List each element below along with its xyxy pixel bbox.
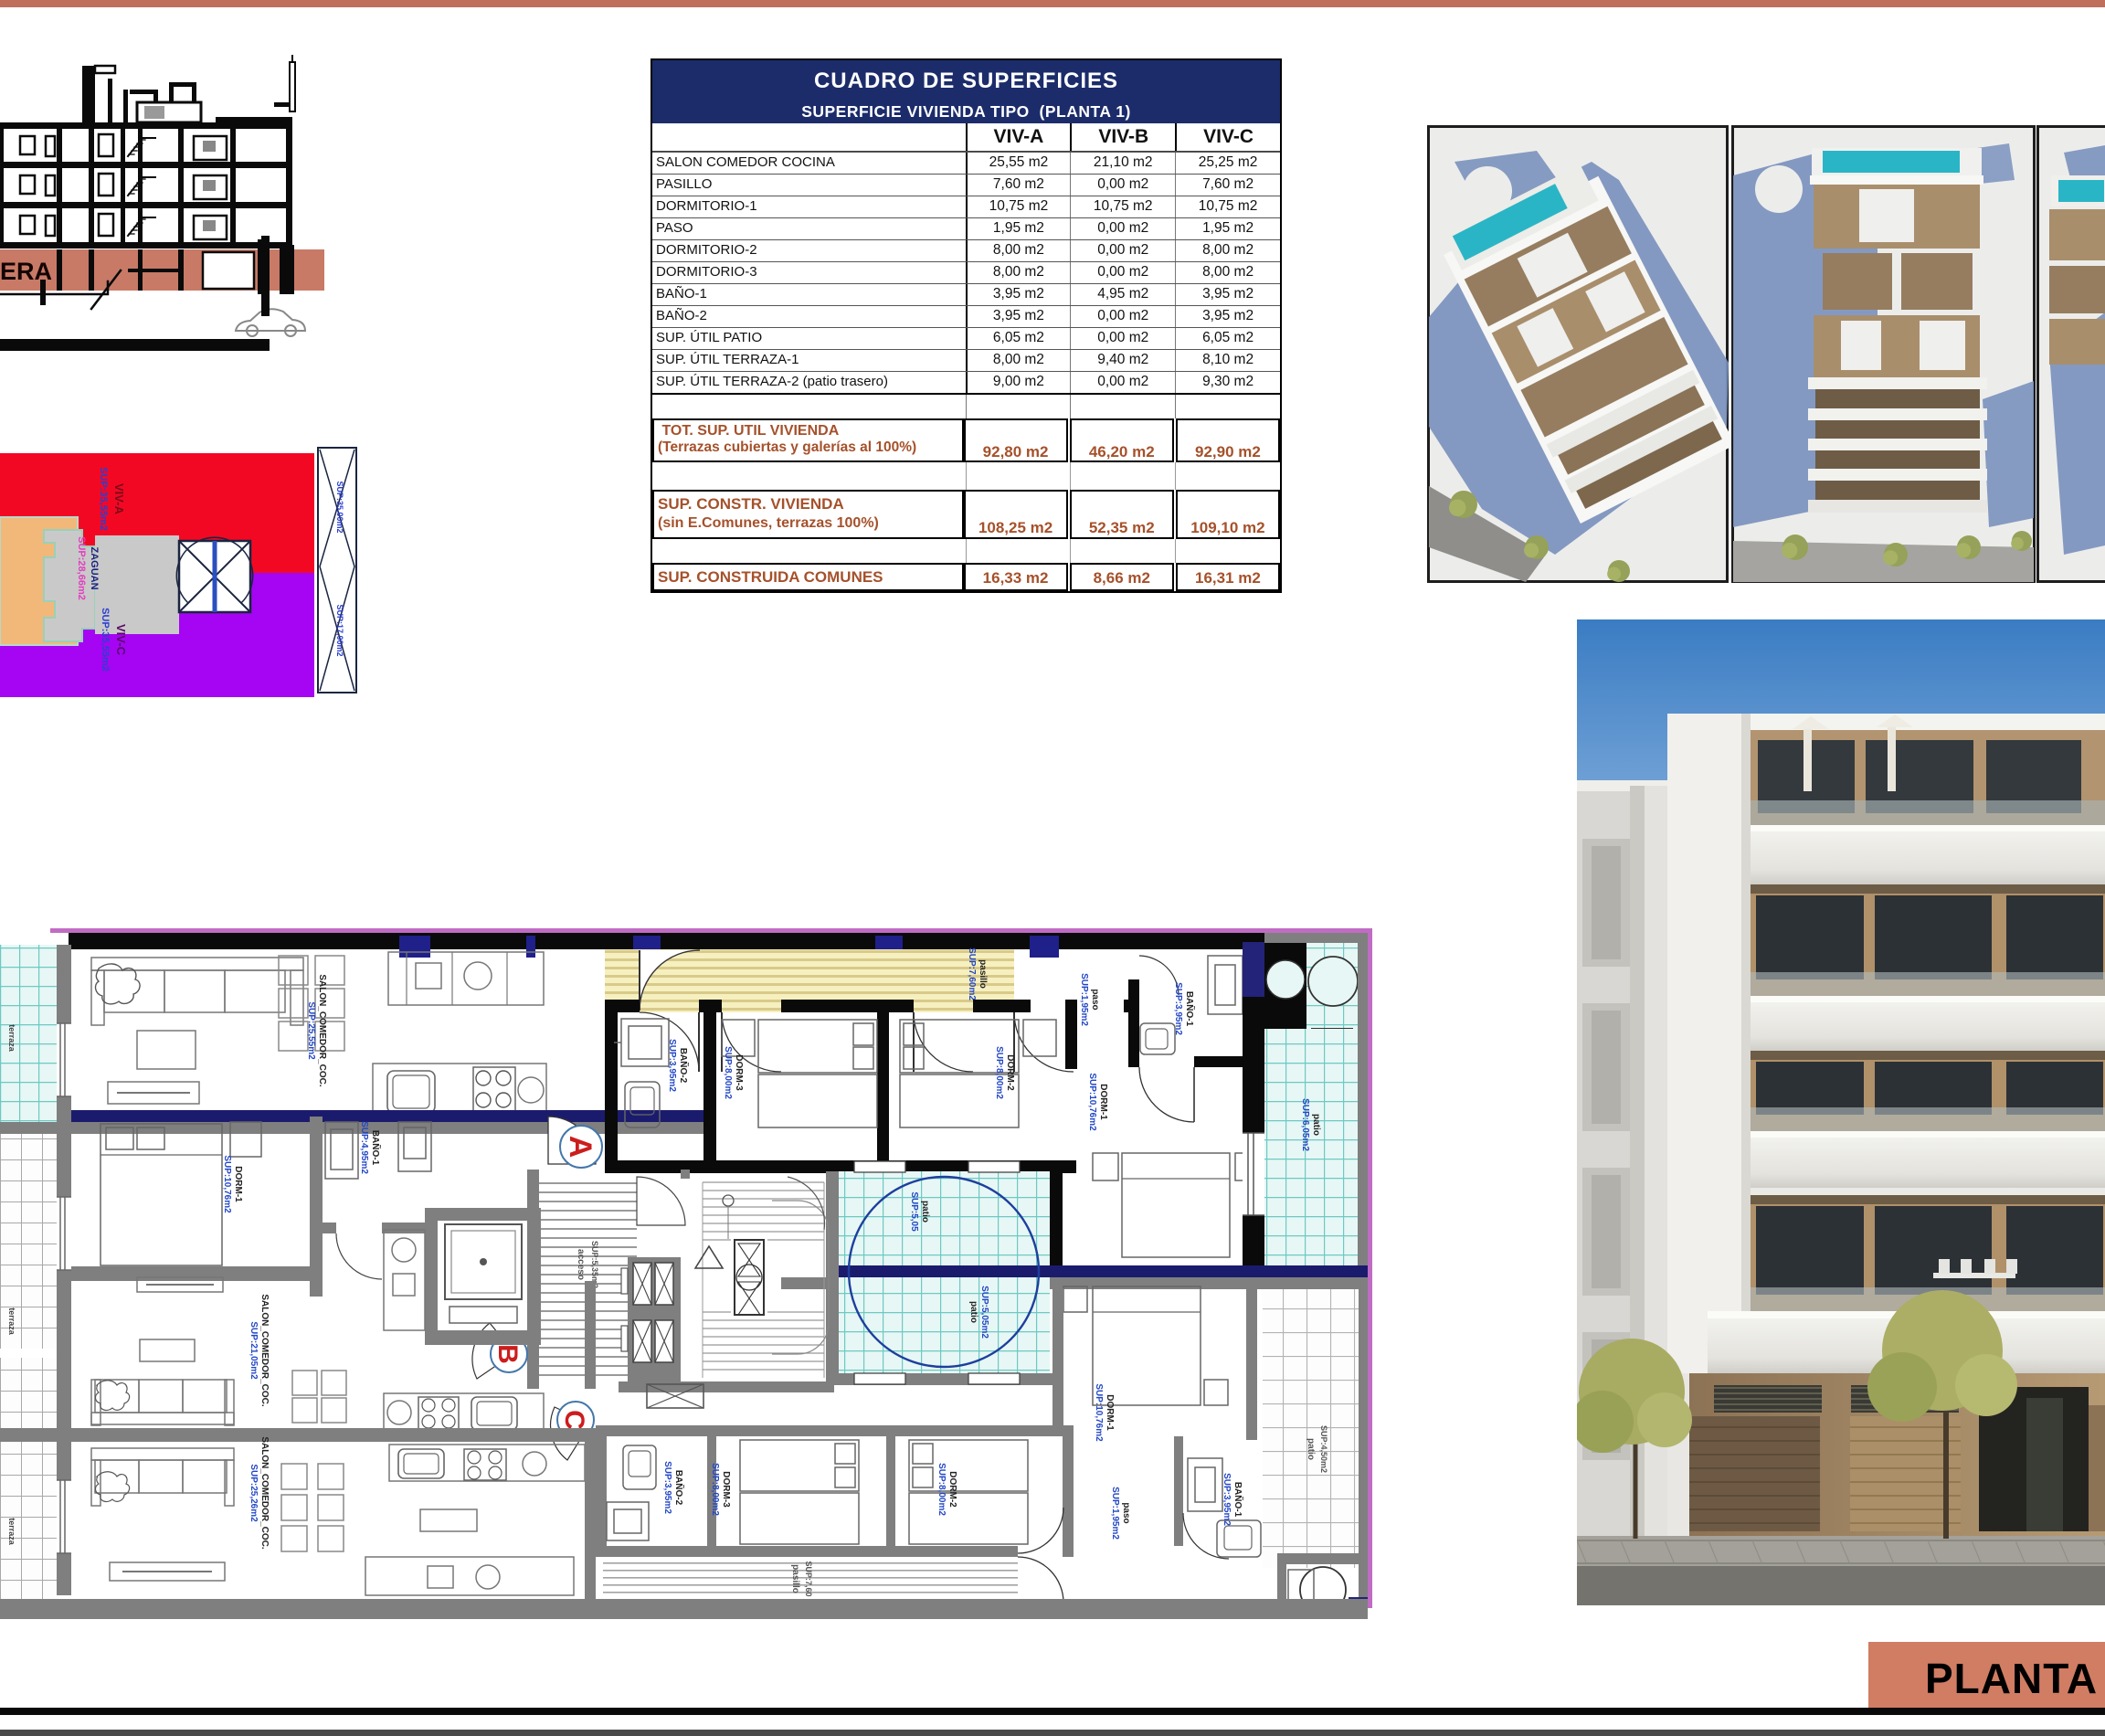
svg-text:patio: patio <box>968 1301 978 1323</box>
svg-text:BAÑO-1: BAÑO-1 <box>1232 1482 1244 1518</box>
svg-text:SUP:17,00m2: SUP:17,00m2 <box>335 604 344 656</box>
svg-text:pasillo: pasillo <box>978 959 988 989</box>
svg-text:patio: patio <box>920 1201 930 1223</box>
svg-text:VIV-A: VIV-A <box>112 483 126 515</box>
svg-text:acceso: acceso <box>576 1249 586 1280</box>
svg-text:patio: patio <box>1306 1438 1316 1460</box>
svg-text:SUP:8,00m2: SUP:8,00m2 <box>994 1046 1004 1099</box>
svg-text:pasillo: pasillo <box>790 1564 800 1593</box>
svg-text:DORM-2: DORM-2 <box>947 1471 957 1508</box>
svg-text:paso: paso <box>1121 1502 1131 1523</box>
svg-text:SUP:3,95m2: SUP:3,95m2 <box>1173 982 1183 1035</box>
svg-text:SUP:25,26m2: SUP:25,26m2 <box>249 1464 259 1522</box>
svg-text:SUP:7,60m2: SUP:7,60m2 <box>967 947 977 1000</box>
svg-text:VIV-C: VIV-C <box>114 624 128 656</box>
svg-text:terraza: terraza <box>7 1024 16 1053</box>
svg-text:ZAGUAN: ZAGUAN <box>89 546 100 589</box>
svg-text:SUP:5,05m2: SUP:5,05m2 <box>979 1286 989 1339</box>
svg-text:SUP:28,66m2: SUP:28,66m2 <box>76 536 87 600</box>
svg-text:DORM-2: DORM-2 <box>1005 1054 1015 1091</box>
svg-text:SUP:10,76m2: SUP:10,76m2 <box>222 1155 232 1213</box>
svg-text:SUP:6,05m2: SUP:6,05m2 <box>1300 1098 1310 1151</box>
svg-text:SUP:8,00m2: SUP:8,00m2 <box>936 1463 947 1516</box>
svg-text:SUP:10,76m2: SUP:10,76m2 <box>1087 1073 1097 1131</box>
svg-text:BAÑO-1: BAÑO-1 <box>1184 991 1196 1027</box>
svg-text:SUP:8,00m2: SUP:8,00m2 <box>723 1046 733 1099</box>
svg-text:patio: patio <box>1311 1114 1321 1136</box>
svg-text:SUP:3,95m2: SUP:3,95m2 <box>662 1461 672 1514</box>
svg-text:SUP:35,55m2: SUP:35,55m2 <box>98 467 109 531</box>
svg-text:DORM-1: DORM-1 <box>1105 1394 1115 1431</box>
svg-text:SUP:4,95m2: SUP:4,95m2 <box>359 1121 369 1174</box>
svg-text:SUP:25,55m2: SUP:25,55m2 <box>306 1001 316 1060</box>
svg-text:SALON_COMEDOR_COC.: SALON_COMEDOR_COC. <box>259 1436 270 1550</box>
svg-text:paso: paso <box>1090 989 1100 1010</box>
svg-text:SUP:35,55m2: SUP:35,55m2 <box>100 608 111 672</box>
svg-text:SUP:4,50m2: SUP:4,50m2 <box>1319 1425 1328 1473</box>
svg-text:B: B <box>492 1344 523 1364</box>
svg-text:BAÑO-1: BAÑO-1 <box>370 1130 382 1166</box>
svg-text:DORM-1: DORM-1 <box>233 1166 243 1202</box>
svg-text:SUP:8,00m2: SUP:8,00m2 <box>710 1463 720 1516</box>
svg-text:SALON_COMEDOR_COC.: SALON_COMEDOR_COC. <box>259 1294 270 1407</box>
svg-text:DORM-1: DORM-1 <box>1098 1084 1108 1120</box>
svg-text:A: A <box>563 1136 598 1159</box>
svg-text:SUP:1,95m2: SUP:1,95m2 <box>1079 973 1089 1026</box>
svg-text:BAÑO-2: BAÑO-2 <box>673 1470 685 1506</box>
svg-text:SALON_COMEDOR_COC.: SALON_COMEDOR_COC. <box>317 974 327 1087</box>
svg-text:terraza: terraza <box>7 1307 16 1336</box>
svg-text:terraza: terraza <box>7 1518 16 1546</box>
svg-text:SUP:7,60: SUP:7,60 <box>804 1561 813 1596</box>
svg-text:SUP:21,05m2: SUP:21,05m2 <box>249 1321 259 1380</box>
svg-text:SUP:3,95m2: SUP:3,95m2 <box>1222 1473 1232 1526</box>
svg-text:DORM-3: DORM-3 <box>734 1054 744 1091</box>
svg-text:SUP:1,95m2: SUP:1,95m2 <box>1110 1487 1120 1540</box>
svg-text:SUP:5,05: SUP:5,05 <box>909 1191 919 1232</box>
svg-text:SUP:3,95m2: SUP:3,95m2 <box>667 1039 677 1092</box>
svg-text:C: C <box>559 1410 589 1430</box>
svg-text:SUP:10,76m2: SUP:10,76m2 <box>1094 1383 1104 1442</box>
svg-text:BAÑO-2: BAÑO-2 <box>678 1048 690 1084</box>
svg-text:DORM-3: DORM-3 <box>721 1471 731 1508</box>
svg-text:SUP:35,00m2: SUP:35,00m2 <box>335 481 344 533</box>
